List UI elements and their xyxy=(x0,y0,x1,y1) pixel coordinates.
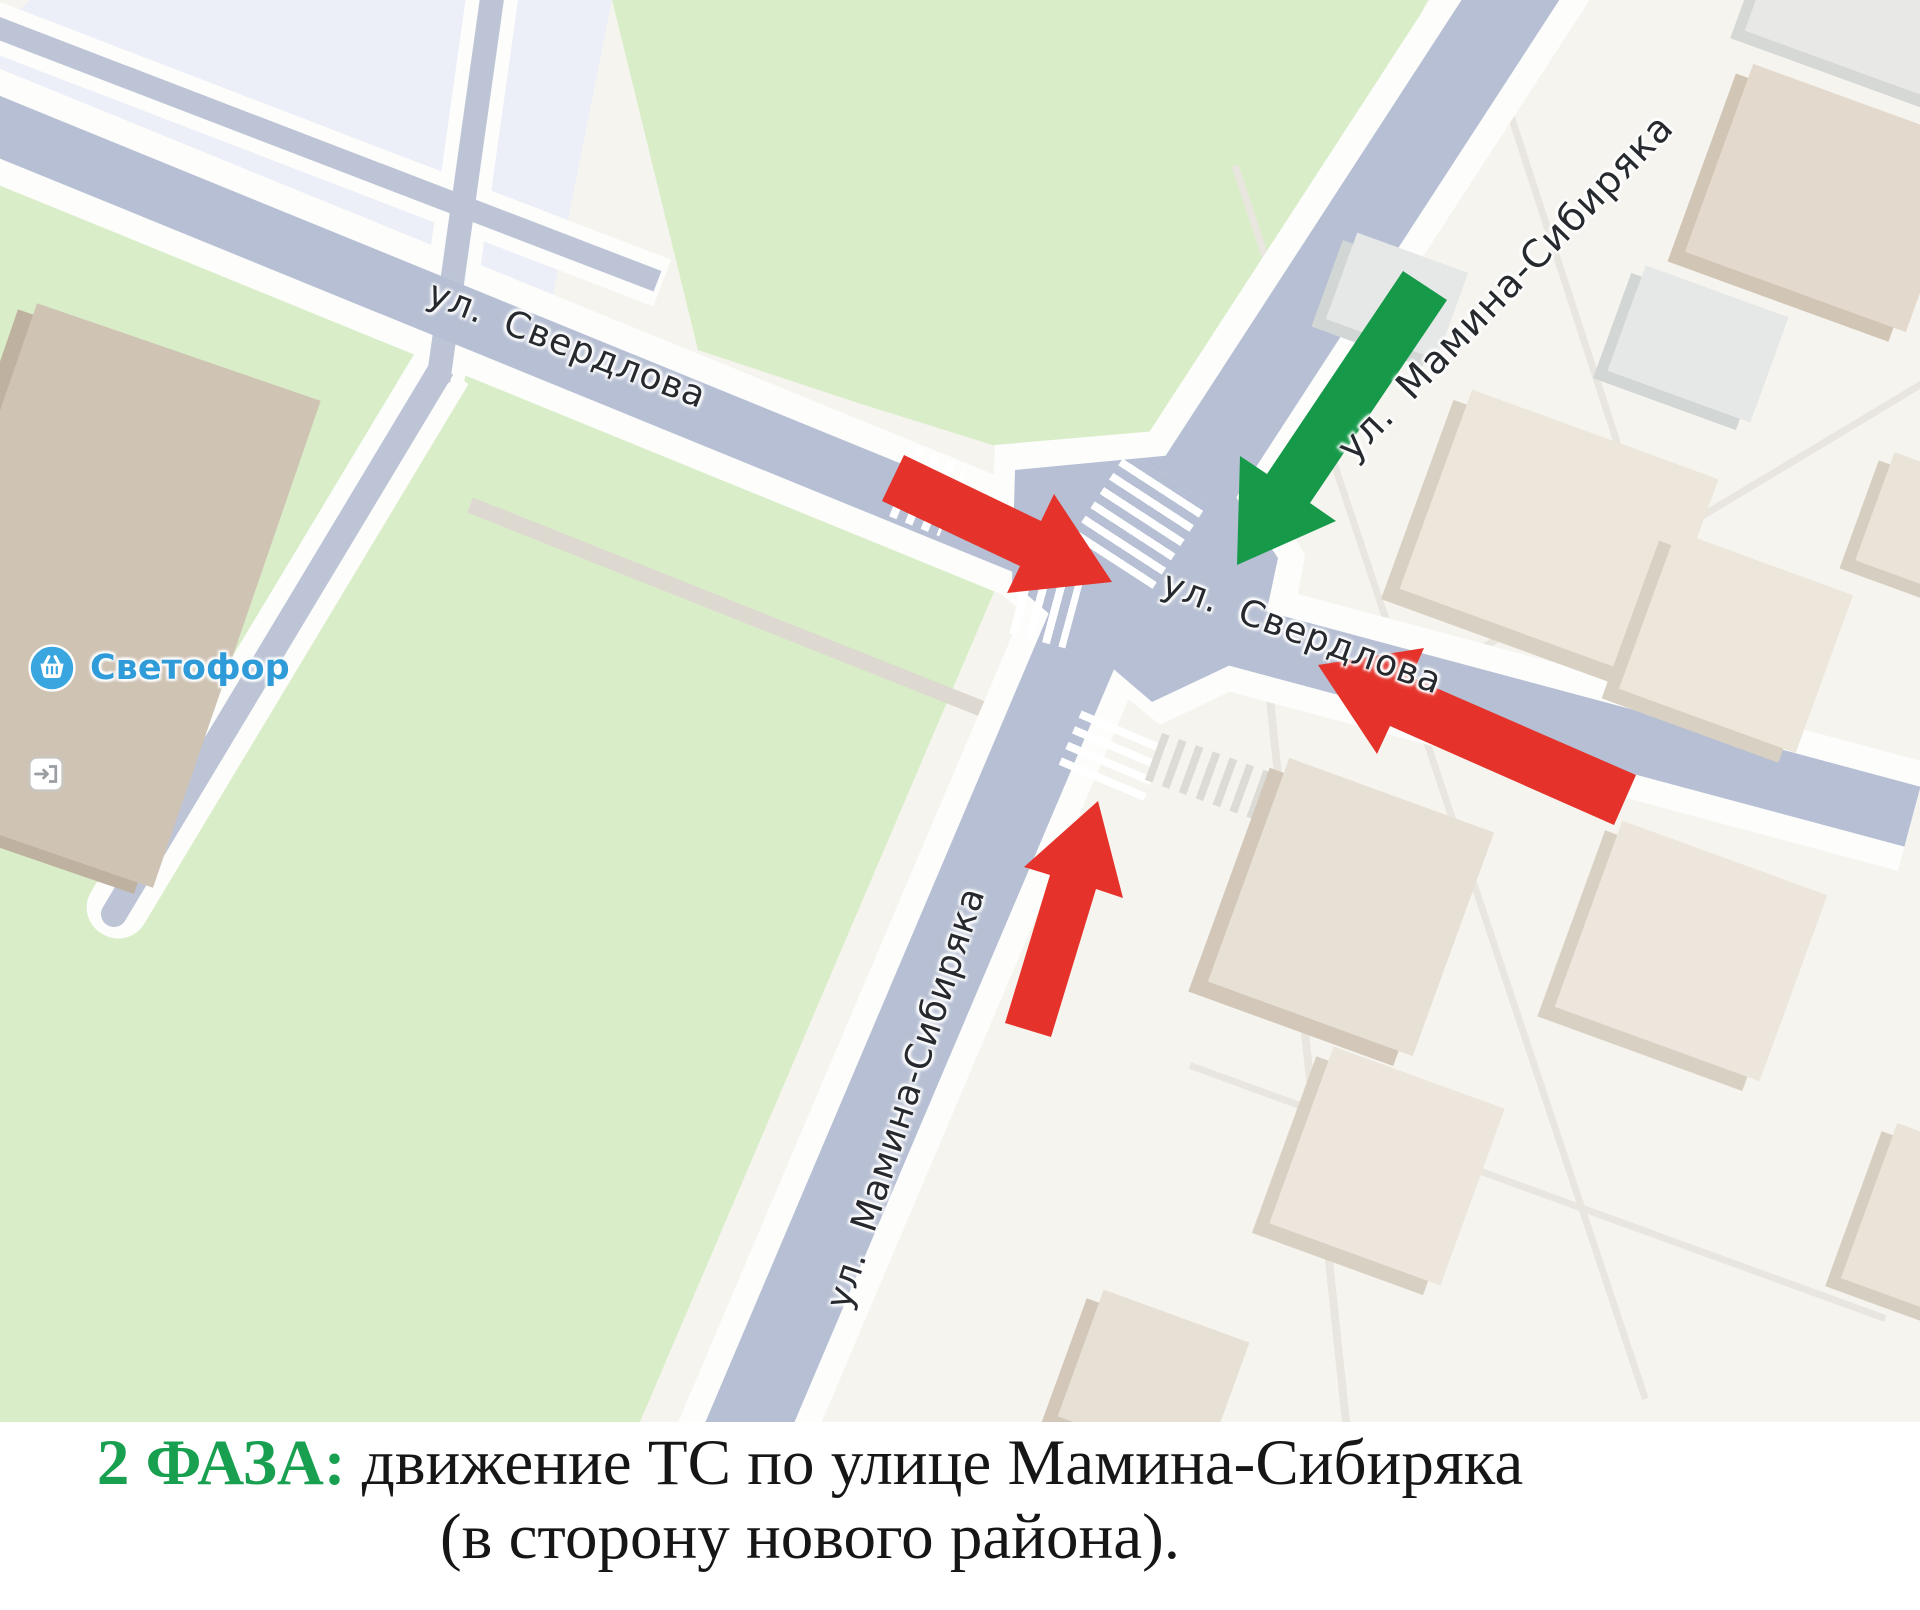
caption-line-2: (в сторону нового района). xyxy=(30,1500,1590,1574)
phase-caption: 2 ФАЗА: движение ТС по улице Мамина-Сиби… xyxy=(30,1426,1590,1574)
poi-svetofor-label: Светофор xyxy=(90,648,290,688)
phase-arrows-layer xyxy=(0,0,1920,1422)
shopping-basket-icon xyxy=(28,644,76,692)
phase-diagram-page: ул. Свердлова ул. Свердлова ул. Мамина-С… xyxy=(0,0,1920,1610)
map-canvas: ул. Свердлова ул. Свердлова ул. Мамина-С… xyxy=(0,0,1920,1422)
phase-description: движение ТС по улице Мамина-Сибиряка xyxy=(362,1427,1523,1499)
caption-line-1: 2 ФАЗА: движение ТС по улице Мамина-Сиби… xyxy=(30,1426,1590,1500)
green-arrow-mamina-southbound xyxy=(1237,271,1447,565)
entrance-icon xyxy=(28,756,64,792)
poi-svetofor xyxy=(28,644,76,692)
red-arrow-mamina-northbound xyxy=(1005,801,1123,1037)
red-arrow-sverdlova-eastbound xyxy=(882,455,1112,593)
phase-number-label: 2 ФАЗА: xyxy=(97,1427,346,1499)
